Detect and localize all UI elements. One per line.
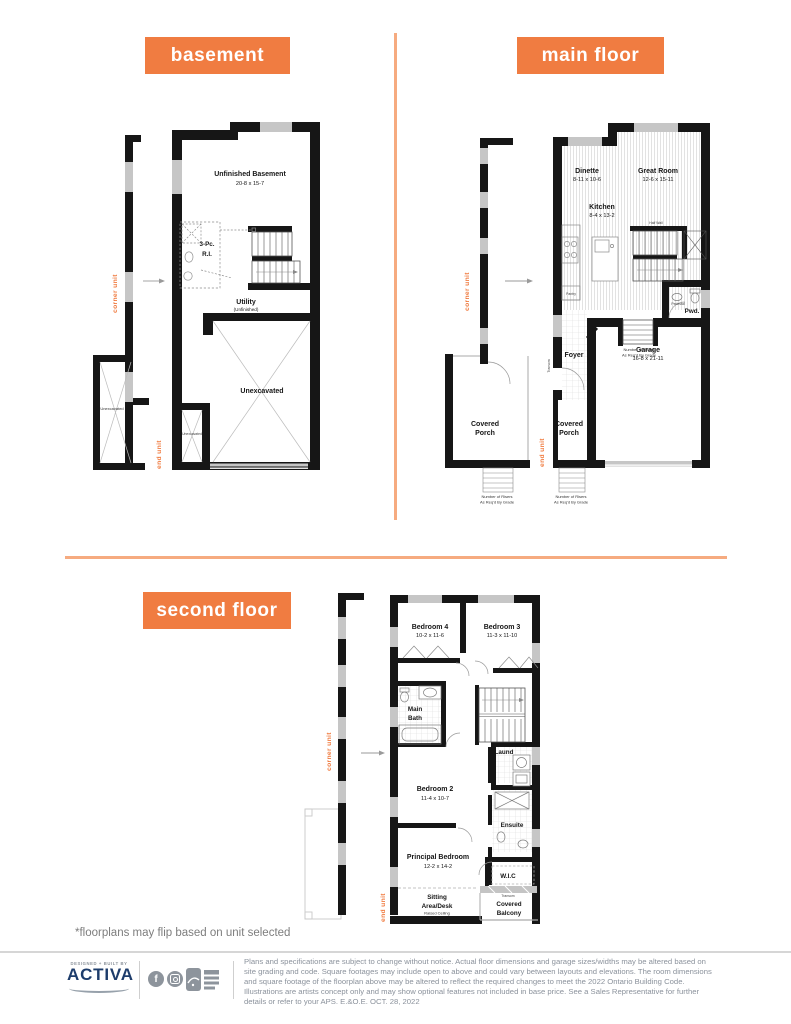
basement-floorplan: Unfinished Basement 20-8 x 15-7 3-Pc. R.… bbox=[60, 110, 340, 510]
room-label-unfinished-basement: Unfinished Basement bbox=[214, 171, 286, 178]
room-label-porch-left-1: Covered bbox=[471, 421, 499, 428]
activa-logo: DESIGNED + BUILT BY ACTIVA bbox=[67, 961, 131, 993]
porch-left-structure bbox=[453, 356, 528, 460]
room-label-balcony-2: Balcony bbox=[497, 910, 522, 917]
horizontal-divider bbox=[65, 556, 727, 559]
risers-note-right-2: As Req'd By Grade bbox=[554, 500, 589, 505]
second-floorplan: Bedroom 4 10-2 x 11-6 Bedroom 3 11-3 x 1… bbox=[295, 585, 550, 930]
main-floorplan: Dinette 8-11 x 10-6 Great Room 12-6 x 15… bbox=[440, 110, 730, 510]
corner-unit-label: corner unit bbox=[464, 272, 471, 311]
facebook-icon[interactable]: f bbox=[148, 971, 164, 987]
footer-separator-1 bbox=[139, 961, 140, 999]
pedestal-label: Pedestal bbox=[671, 302, 684, 306]
room-label-utility: Utility bbox=[236, 299, 256, 306]
room-label-foyer: Foyer bbox=[564, 352, 583, 359]
corner-unit-label: corner unit bbox=[326, 732, 333, 771]
room-dims-bedroom4: 10-2 x 11-6 bbox=[416, 633, 444, 639]
room-label-bedroom2: Bedroom 2 bbox=[417, 786, 454, 793]
end-unit-label: end unit bbox=[539, 438, 546, 467]
basement-unit-arrow bbox=[143, 279, 165, 284]
second-unit-arrow bbox=[361, 751, 385, 756]
room-label-sitting-2: Area/Desk bbox=[422, 903, 453, 910]
second-stairs bbox=[479, 688, 525, 742]
room-label-balcony-1: Covered bbox=[496, 901, 521, 908]
room-label-porch-left-2: Porch bbox=[475, 430, 495, 437]
room-label-porch-right-1: Covered bbox=[555, 421, 583, 428]
risers-note-right-1: Number of Risers bbox=[555, 494, 586, 499]
room-label-laundry: Laund bbox=[495, 749, 514, 756]
corner-unit-label: corner unit bbox=[112, 274, 119, 313]
room-label-rough-in-2: R.I. bbox=[202, 251, 212, 258]
room-dims-bedroom2: 11-4 x 10-7 bbox=[421, 796, 449, 802]
vertical-divider bbox=[394, 33, 397, 520]
risers-note-left-1: Number of Risers bbox=[481, 494, 512, 499]
main-floor-title: main floor bbox=[517, 37, 664, 74]
risers-note-left-2: As Req'd By Grade bbox=[480, 500, 515, 505]
room-dims-great-room: 12-6 x 15-11 bbox=[643, 177, 674, 183]
room-sub-sitting: Raised Ceiling bbox=[424, 911, 450, 916]
room-label-rough-in-1: 3-Pc. bbox=[199, 241, 214, 248]
room-label-porch-right-2: Porch bbox=[559, 430, 579, 437]
room-label-unexcavated-left: Unexcavated bbox=[100, 406, 123, 411]
footer-divider bbox=[0, 951, 791, 953]
half-wall-note: Half Wall bbox=[649, 221, 663, 225]
main-unit-arrow bbox=[505, 279, 533, 284]
basement-garage-door bbox=[210, 464, 308, 470]
room-label-kitchen: Kitchen bbox=[589, 204, 615, 211]
facebook-glyph: f bbox=[154, 974, 157, 985]
basement-windows bbox=[125, 122, 292, 402]
room-dims-dinette: 8-11 x 10-6 bbox=[573, 177, 601, 183]
energy-star-badge bbox=[186, 968, 220, 996]
rough-in-bath-fixtures bbox=[180, 222, 256, 288]
porch-right-stairs bbox=[559, 468, 585, 492]
end-unit-label: end unit bbox=[156, 440, 163, 469]
balcony-transom-label: Transom bbox=[501, 894, 514, 898]
pantry-label: Pantry bbox=[566, 292, 576, 296]
flip-footnote: *floorplans may flip based on unit selec… bbox=[75, 927, 290, 939]
roof-outline bbox=[305, 809, 341, 919]
room-label-unexcavated-mid: Unexcavated bbox=[182, 432, 202, 436]
room-label-unexcavated-main: Unexcavated bbox=[240, 388, 283, 395]
logo-swoosh bbox=[69, 984, 129, 993]
brochure-page: basement main floor second floor bbox=[0, 0, 791, 1024]
room-dims-principal: 12-2 x 14-2 bbox=[424, 864, 452, 870]
room-label-ensuite: Ensuite bbox=[501, 822, 524, 829]
room-dims-kitchen: 8-4 x 13-2 bbox=[589, 213, 614, 219]
second-floor-title: second floor bbox=[143, 592, 291, 629]
room-label-bedroom4: Bedroom 4 bbox=[412, 624, 449, 631]
transom-label: Transom bbox=[547, 359, 551, 372]
room-label-great-room: Great Room bbox=[638, 168, 678, 175]
instagram-icon[interactable] bbox=[167, 971, 183, 987]
room-label-main-bath-2: Bath bbox=[408, 715, 422, 722]
room-label-main-bath-1: Main bbox=[408, 706, 422, 713]
end-unit-label: end unit bbox=[380, 893, 387, 922]
risers-note-garage-2: As Req'd By Grade bbox=[622, 353, 657, 358]
footer: DESIGNED + BUILT BY ACTIVA f Pla bbox=[0, 955, 791, 1015]
room-sub-utility: (Unfinished) bbox=[234, 307, 259, 312]
porch-left-stairs bbox=[483, 468, 513, 492]
instagram-frame-glyph bbox=[170, 974, 180, 984]
room-label-wic: W.I.C bbox=[500, 873, 516, 880]
garage-entry-steps bbox=[623, 320, 653, 344]
room-label-dinette: Dinette bbox=[575, 168, 599, 175]
instagram-dot-glyph bbox=[173, 977, 178, 982]
room-dims-bedroom3: 11-3 x 11-10 bbox=[487, 633, 518, 639]
basement-title: basement bbox=[145, 37, 290, 74]
room-label-powder: Pwd. bbox=[685, 308, 700, 315]
footer-separator-2 bbox=[233, 961, 234, 999]
room-label-sitting-1: Sitting bbox=[427, 894, 447, 901]
disclaimer-text: Plans and specifications are subject to … bbox=[244, 957, 714, 1007]
room-label-principal: Principal Bedroom bbox=[407, 854, 469, 861]
risers-note-garage-1: Number of Risers bbox=[623, 347, 654, 352]
room-dims-unfinished-basement: 20-8 x 15-7 bbox=[236, 181, 264, 187]
room-label-bedroom3: Bedroom 3 bbox=[484, 624, 521, 631]
logo-brand: ACTIVA bbox=[67, 966, 131, 984]
